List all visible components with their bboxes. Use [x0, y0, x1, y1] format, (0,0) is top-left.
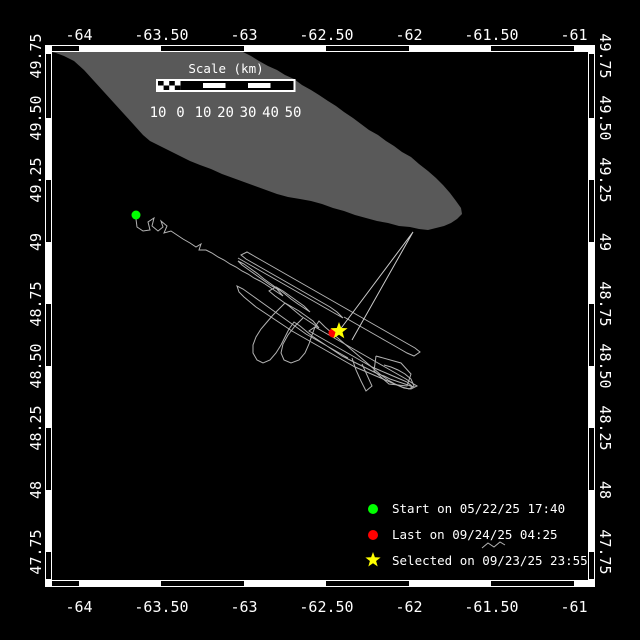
scale-num: 40	[262, 105, 279, 121]
lat-tick-label: 49.50	[27, 95, 45, 140]
legend-start-label: Start on 05/22/25 17:40	[392, 501, 565, 516]
lon-tick-label: -63	[230, 598, 257, 616]
scale-bar-segments	[181, 81, 294, 90]
lon-axis-top: -64 -63.50 -63 -62.50 -62 -61.50 -61	[65, 26, 587, 44]
lat-tick-label: 49	[27, 233, 45, 251]
lon-tick-label: -61	[560, 598, 587, 616]
lat-tick-label: 47.75	[27, 529, 45, 574]
lat-tick-label: 48.50	[27, 343, 45, 388]
lat-tick-label: 49.25	[596, 157, 614, 202]
scale-num: 30	[240, 105, 257, 121]
lat-tick-label: 49.50	[596, 95, 614, 140]
lon-tick-label: -62.50	[299, 26, 353, 44]
lon-tick-label: -61	[560, 26, 587, 44]
scale-num: 50	[285, 105, 302, 121]
lon-tick-label: -63.50	[134, 598, 188, 616]
legend-last-circle-icon	[368, 530, 378, 540]
lat-tick-label: 48.50	[596, 343, 614, 388]
lon-tick-label: -63.50	[134, 26, 188, 44]
legend-last-label: Last on 09/24/25 04:25	[392, 527, 558, 542]
lon-tick-label: -62	[395, 26, 422, 44]
lon-tick-label: -63	[230, 26, 257, 44]
scale-num: 20	[217, 105, 234, 121]
legend: Start on 05/22/25 17:40 Last on 09/24/25…	[365, 501, 587, 568]
lat-tick-label: 48.75	[27, 281, 45, 326]
lat-tick-label: 48	[596, 481, 614, 499]
lat-tick-label: 49.75	[27, 33, 45, 78]
lat-tick-label: 48	[27, 481, 45, 499]
lat-tick-label: 48.25	[596, 405, 614, 450]
legend-selected-label: Selected on 09/23/25 23:55	[392, 553, 588, 568]
scale-num: 10	[195, 105, 212, 121]
legend-start-circle-icon	[368, 504, 378, 514]
scale-num: 10	[150, 105, 167, 121]
lon-tick-label: -64	[65, 26, 92, 44]
lon-tick-label: -64	[65, 598, 92, 616]
lat-axis-right: 49.75 49.50 49.25 49 48.75 48.50 48.25 4…	[596, 33, 614, 574]
start-marker[interactable]	[132, 211, 141, 220]
lon-tick-label: -61.50	[464, 26, 518, 44]
lat-tick-label: 49.75	[596, 33, 614, 78]
lat-tick-label: 47.75	[596, 529, 614, 574]
map-canvas: -64 -63.50 -63 -62.50 -62 -61.50 -61 -64…	[0, 0, 640, 640]
lat-tick-label: 49.25	[27, 157, 45, 202]
scale-bar-title: Scale (km)	[188, 61, 263, 76]
lat-axis-left: 49.75 49.50 49.25 49 48.75 48.50 48.25 4…	[27, 33, 45, 574]
lat-tick-label: 48.25	[27, 405, 45, 450]
lon-tick-label: -61.50	[464, 598, 518, 616]
lat-tick-label: 48.75	[596, 281, 614, 326]
lon-axis-bottom: -64 -63.50 -63 -62.50 -62 -61.50 -61	[65, 598, 587, 616]
map-window: -64 -63.50 -63 -62.50 -62 -61.50 -61 -64…	[0, 0, 640, 640]
lon-tick-label: -62	[395, 598, 422, 616]
lon-tick-label: -62.50	[299, 598, 353, 616]
scale-num: 0	[176, 105, 184, 121]
lat-tick-label: 49	[596, 233, 614, 251]
